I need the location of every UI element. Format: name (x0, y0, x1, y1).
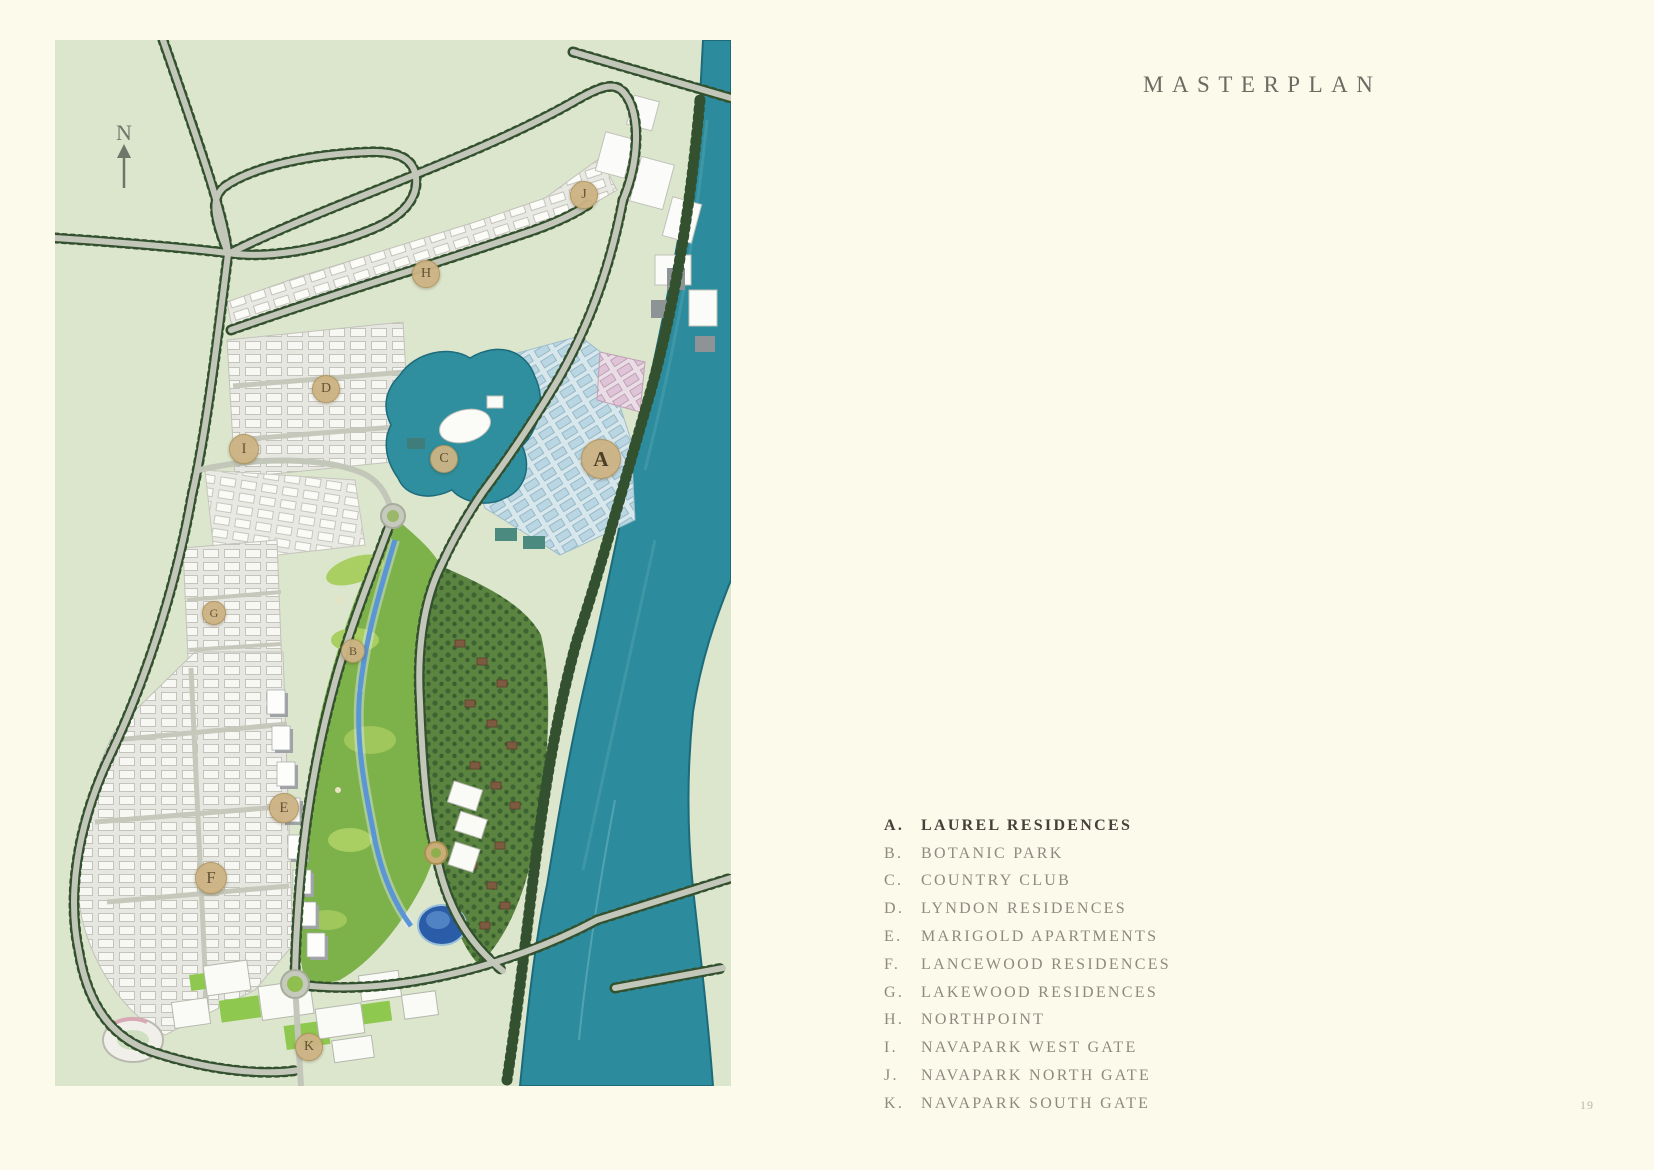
legend-label: NAVAPARK NORTH GATE (921, 1067, 1151, 1085)
page-title: MASTERPLAN (1143, 72, 1381, 98)
map-marker-layer: ABCDEFGHIJK (55, 40, 731, 1086)
legend-item-h: H. NORTHPOINT (884, 1007, 1171, 1035)
legend-letter: G. (884, 984, 921, 1002)
legend-letter: K. (884, 1095, 921, 1113)
legend-item-c: C. COUNTRY CLUB (884, 868, 1171, 896)
legend-label: BOTANIC PARK (921, 845, 1064, 863)
legend-item-j: J. NAVAPARK NORTH GATE (884, 1062, 1171, 1090)
map-marker-d: D (312, 375, 340, 403)
legend-item-b: B. BOTANIC PARK (884, 840, 1171, 868)
legend-label: LANCEWOOD RESIDENCES (921, 956, 1171, 974)
legend-item-f: F. LANCEWOOD RESIDENCES (884, 951, 1171, 979)
legend-letter: H. (884, 1011, 921, 1029)
legend-label: NAVAPARK SOUTH GATE (921, 1095, 1150, 1113)
legend-letter: C. (884, 872, 921, 890)
map-marker-i: I (229, 434, 259, 464)
legend-label: NORTHPOINT (921, 1011, 1045, 1029)
legend-letter: A. (884, 817, 921, 835)
masterplan-map: N ABCDEFGHIJK (55, 40, 731, 1086)
map-marker-e: E (269, 793, 299, 823)
legend-item-d: D. LYNDON RESIDENCES (884, 895, 1171, 923)
legend-letter: B. (884, 845, 921, 863)
legend-letter: I. (884, 1039, 921, 1057)
legend-letter: D. (884, 900, 921, 918)
legend-label: MARIGOLD APARTMENTS (921, 928, 1158, 946)
legend-letter: F. (884, 956, 921, 974)
map-marker-a: A (581, 439, 621, 479)
legend-label: LAUREL RESIDENCES (921, 817, 1132, 835)
legend-label: LAKEWOOD RESIDENCES (921, 984, 1158, 1002)
map-marker-b: B (341, 639, 365, 663)
map-marker-h: H (412, 260, 440, 288)
map-marker-c: C (430, 445, 458, 473)
legend-item-a: A. LAUREL RESIDENCES (884, 812, 1171, 840)
map-marker-f: F (195, 862, 227, 894)
map-marker-g: G (202, 601, 226, 625)
legend-label: COUNTRY CLUB (921, 872, 1071, 890)
legend-letter: J. (884, 1067, 921, 1085)
legend: A. LAUREL RESIDENCES B. BOTANIC PARK C. … (884, 812, 1171, 1118)
legend-label: LYNDON RESIDENCES (921, 900, 1127, 918)
brochure-page: N ABCDEFGHIJK MASTERPLAN A. LAUREL RESID… (0, 0, 1654, 1170)
legend-label: NAVAPARK WEST GATE (921, 1039, 1138, 1057)
legend-item-i: I. NAVAPARK WEST GATE (884, 1034, 1171, 1062)
page-number: 19 (1580, 1098, 1594, 1113)
map-marker-j: J (570, 181, 598, 209)
legend-item-e: E. MARIGOLD APARTMENTS (884, 923, 1171, 951)
legend-item-k: K. NAVAPARK SOUTH GATE (884, 1090, 1171, 1118)
map-marker-k: K (295, 1033, 323, 1061)
legend-letter: E. (884, 928, 921, 946)
legend-item-g: G. LAKEWOOD RESIDENCES (884, 979, 1171, 1007)
